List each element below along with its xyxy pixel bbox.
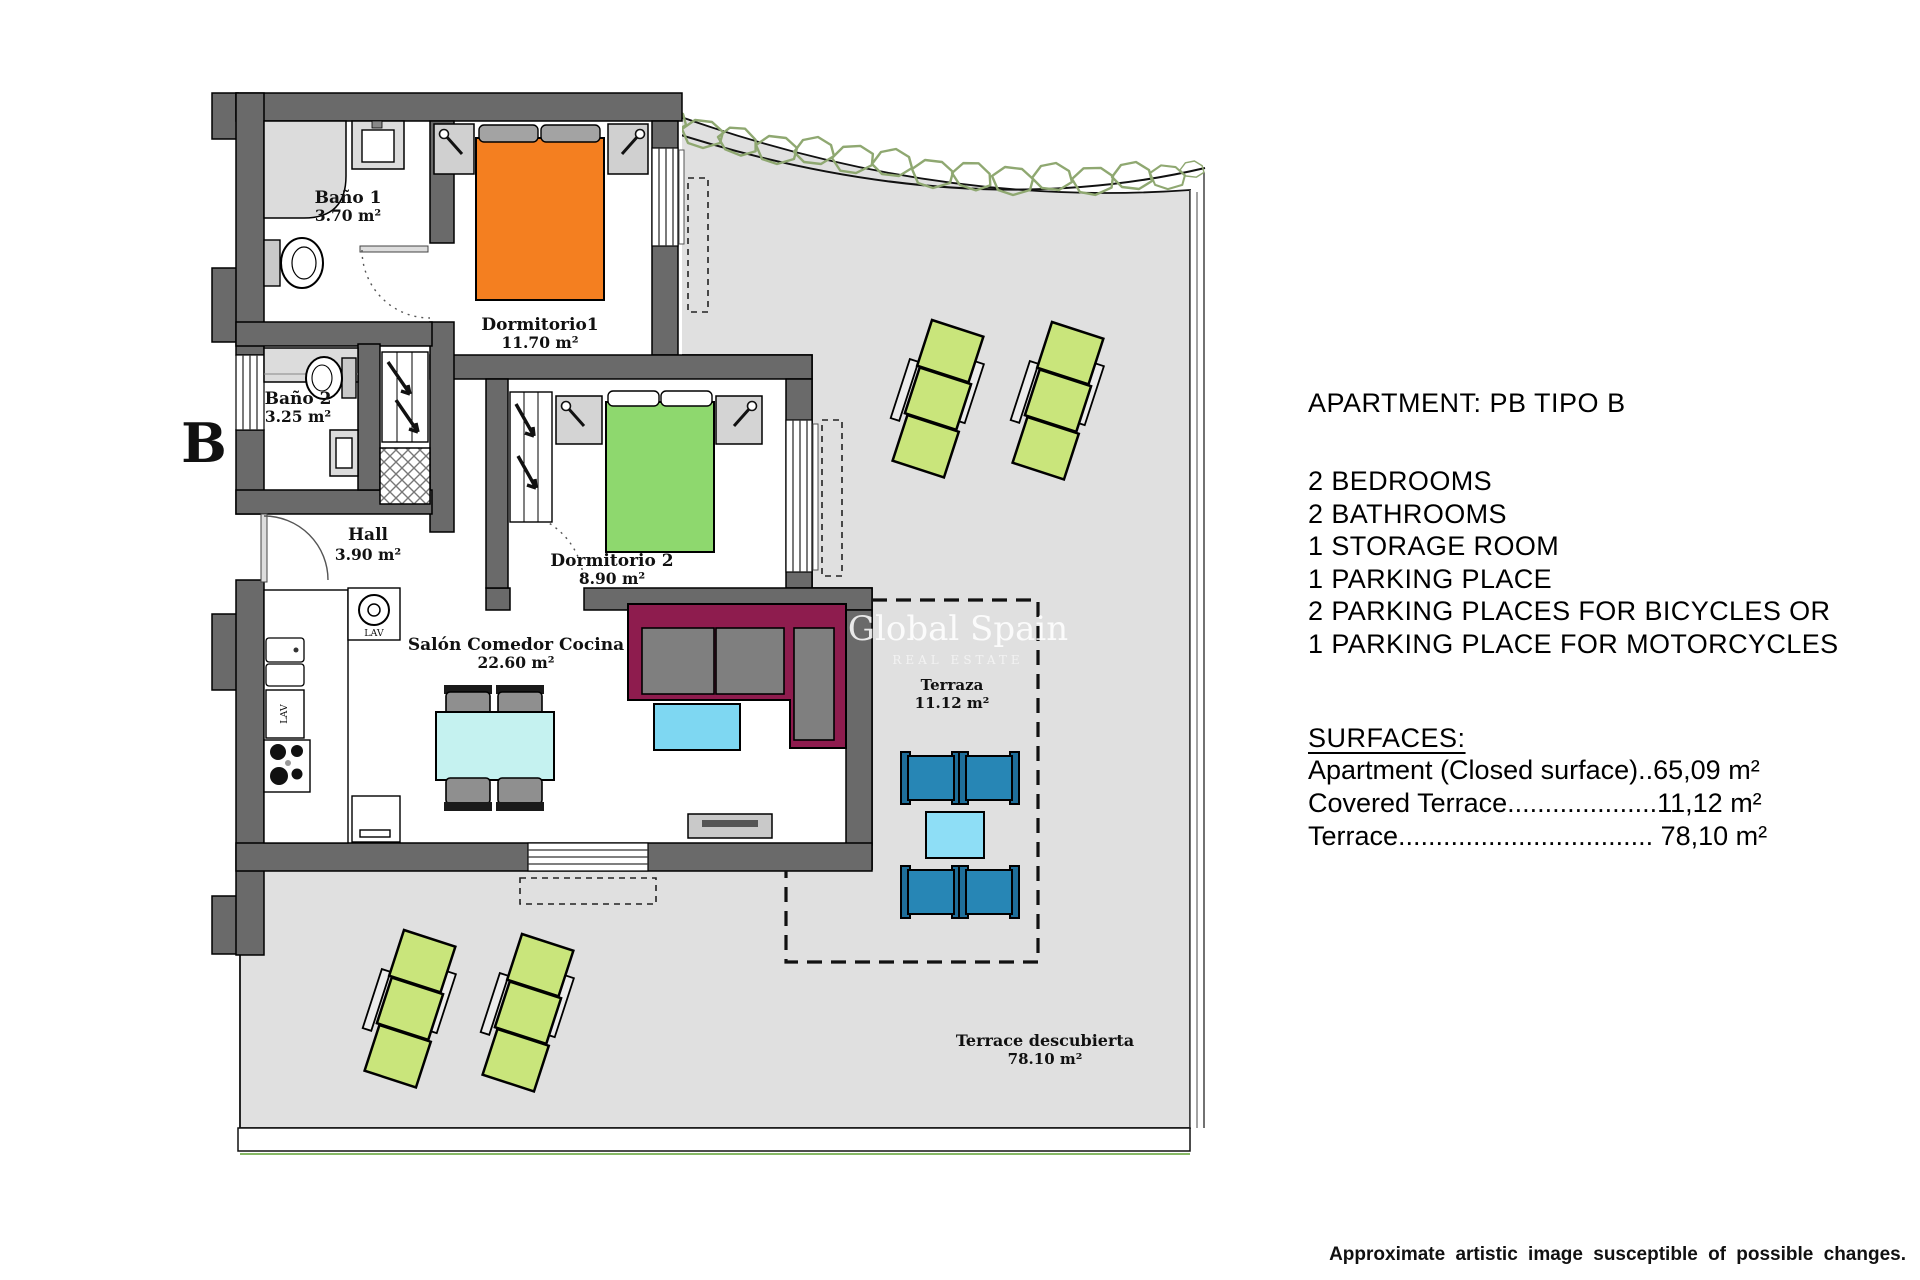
label-bano1-area: 3.70 m² bbox=[315, 206, 381, 225]
coffee-table bbox=[654, 704, 740, 750]
pillow bbox=[661, 391, 712, 406]
pillow bbox=[541, 125, 600, 142]
pillow bbox=[608, 391, 659, 406]
floorplan-page: LAV LAV bbox=[0, 0, 1920, 1280]
label-salon-area: 22.60 m² bbox=[477, 653, 554, 672]
bed-dorm1 bbox=[476, 138, 604, 300]
bed-dorm2 bbox=[606, 402, 714, 552]
label-bano2-name: Baño 2 bbox=[265, 389, 332, 409]
terrace-chair bbox=[901, 752, 961, 804]
kitchen-sink bbox=[266, 638, 304, 686]
dining-chair bbox=[496, 778, 544, 811]
label-dorm1-name: Dormitorio1 bbox=[481, 315, 598, 335]
label-bano1-name: Baño 1 bbox=[315, 188, 382, 208]
sofa-cushion bbox=[642, 628, 714, 694]
feature-bedrooms: 2 BEDROOMS bbox=[1308, 465, 1908, 498]
wardrobe bbox=[382, 352, 428, 442]
storage-room bbox=[380, 352, 430, 504]
terrace-edge-bottom bbox=[238, 1128, 1190, 1154]
sofa-cushion bbox=[716, 628, 784, 694]
feature-storage: 1 STORAGE ROOM bbox=[1308, 530, 1908, 563]
label-dorm2-area: 8.90 m² bbox=[579, 569, 645, 588]
surface-covered-terrace: Covered Terrace....................11,12… bbox=[1308, 787, 1908, 820]
wardrobe-dorm2 bbox=[510, 392, 552, 522]
label-hall-name: Hall bbox=[348, 525, 389, 545]
washbasin bbox=[352, 121, 404, 169]
label-terraza-name: Terraza bbox=[921, 676, 984, 694]
surface-terrace: Terrace.................................… bbox=[1308, 820, 1908, 853]
dishwasher-label: LAV bbox=[279, 704, 290, 724]
sofa-cushion bbox=[794, 628, 834, 740]
mosaic-tile bbox=[380, 448, 430, 504]
label-bano2-area: 3.25 m² bbox=[265, 407, 331, 426]
washing-machine: LAV bbox=[348, 588, 400, 640]
pillow bbox=[479, 125, 538, 142]
label-terrace-open-area: 78.10 m² bbox=[1008, 1050, 1083, 1068]
feature-bicycles: 2 PARKING PLACES FOR BICYCLES OR bbox=[1308, 595, 1908, 628]
washer-label: LAV bbox=[364, 628, 384, 639]
feature-parking: 1 PARKING PLACE bbox=[1308, 563, 1908, 596]
stove bbox=[264, 740, 310, 792]
feature-bathrooms: 2 BATHROOMS bbox=[1308, 498, 1908, 531]
watermark-subtitle: REAL ESTATE bbox=[892, 653, 1023, 667]
terrace-railing-right bbox=[1190, 172, 1205, 1128]
kitchen-cabinet bbox=[352, 796, 400, 842]
label-hall-area: 3.90 m² bbox=[335, 545, 401, 564]
window-left-wall bbox=[236, 355, 264, 430]
label-dorm1-area: 11.70 m² bbox=[501, 333, 578, 352]
terrace-table bbox=[926, 812, 984, 858]
dishwasher: LAV bbox=[266, 690, 304, 738]
info-panel: APARTMENT: PB TIPO B 2 BEDROOMS 2 BATHRO… bbox=[1308, 388, 1908, 853]
terrace-chair bbox=[959, 866, 1019, 918]
disclaimer-text: Approximate artistic image susceptible o… bbox=[1329, 1244, 1906, 1266]
terrace-chair bbox=[901, 866, 961, 918]
label-salon-name: Salón Comedor Cocina bbox=[408, 635, 624, 655]
toilet bbox=[264, 238, 323, 288]
surfaces-heading: SURFACES: bbox=[1308, 723, 1466, 754]
feature-motorcycles: 1 PARKING PLACE FOR MOTORCYCLES bbox=[1308, 628, 1908, 661]
surface-apartment: Apartment (Closed surface)..65,09 m² bbox=[1308, 754, 1908, 787]
label-dorm2-name: Dormitorio 2 bbox=[550, 551, 673, 571]
dining-table bbox=[436, 712, 554, 780]
washbasin bbox=[330, 430, 358, 476]
apartment-title: APARTMENT: PB TIPO B bbox=[1308, 388, 1908, 419]
label-terrace-open-name: Terrace descubierta bbox=[956, 1031, 1134, 1050]
dining-chair bbox=[444, 778, 492, 811]
tv-bench bbox=[688, 814, 772, 838]
block-letter: B bbox=[181, 411, 227, 475]
watermark-logo: Global Spain bbox=[848, 609, 1068, 649]
label-terraza-area: 11.12 m² bbox=[915, 694, 990, 712]
terrace-chair bbox=[959, 752, 1019, 804]
